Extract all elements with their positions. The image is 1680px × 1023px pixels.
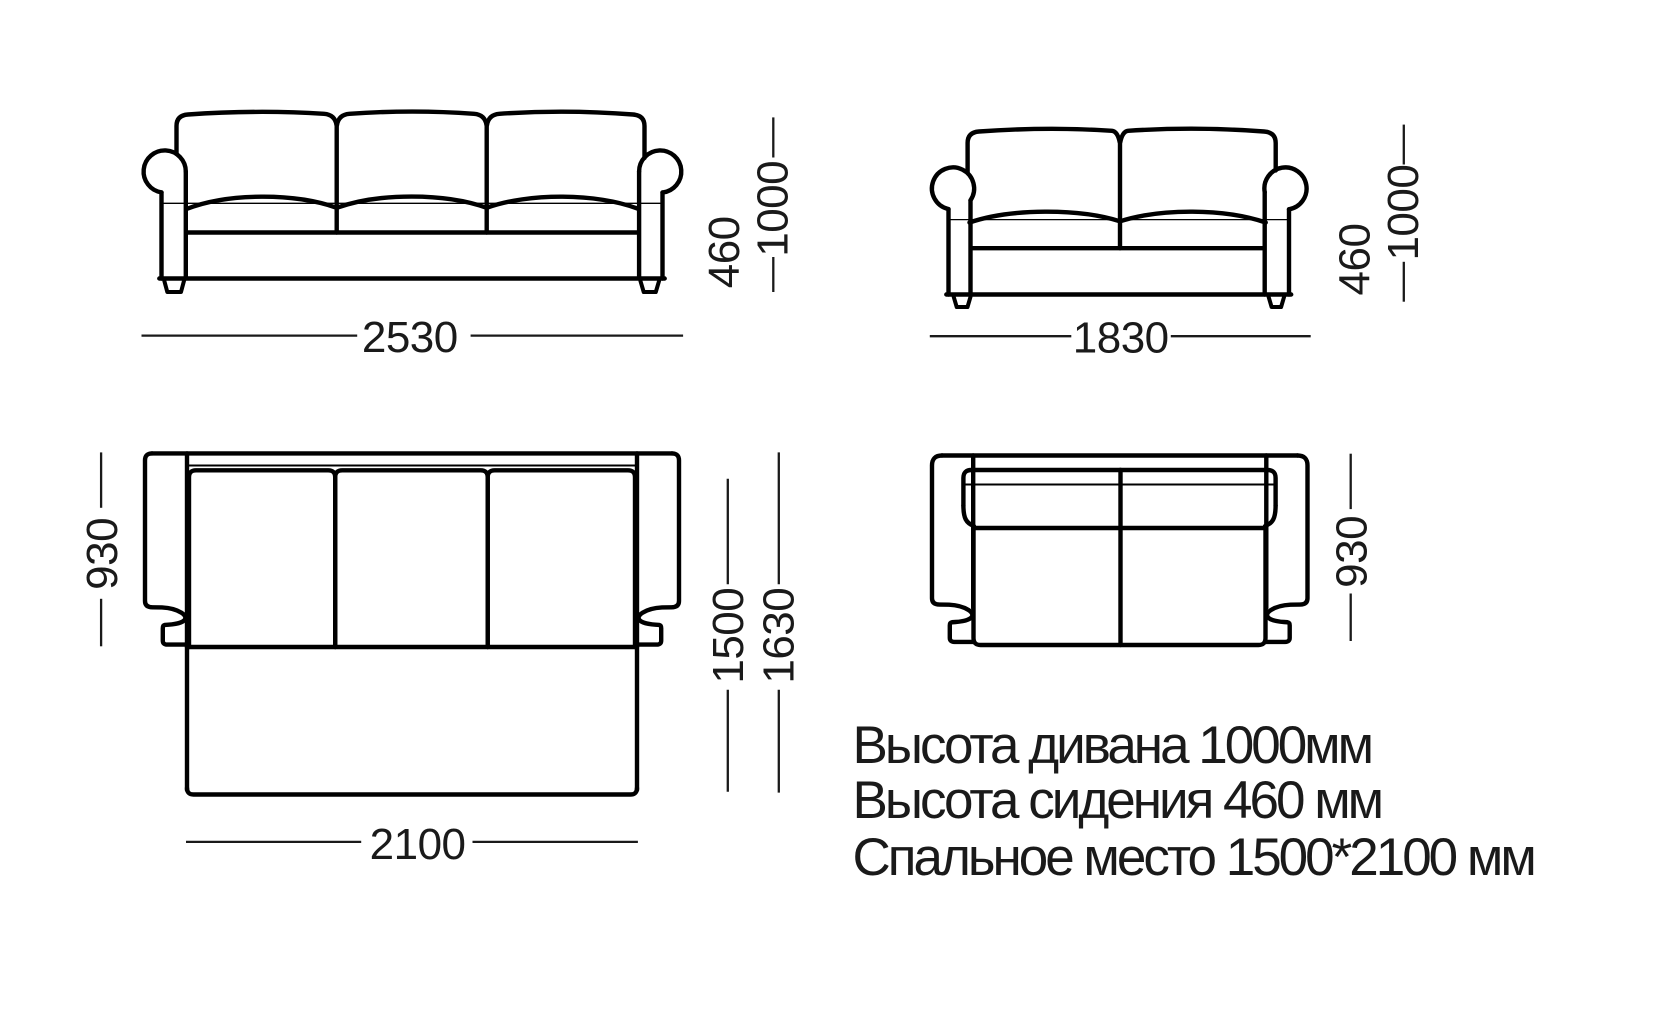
svg-text:930: 930 <box>1328 516 1377 588</box>
svg-text:1500: 1500 <box>704 588 753 684</box>
svg-text:Спальное место 1500*2100 мм: Спальное место 1500*2100 мм <box>853 828 1534 887</box>
svg-text:2100: 2100 <box>370 820 466 869</box>
svg-text:930: 930 <box>78 518 127 590</box>
svg-text:Высота сидения 460 мм: Высота сидения 460 мм <box>853 771 1382 830</box>
svg-text:1000: 1000 <box>749 161 798 257</box>
svg-text:460: 460 <box>1330 224 1379 296</box>
svg-text:Высота дивана 1000мм: Высота дивана 1000мм <box>853 716 1372 775</box>
svg-text:1630: 1630 <box>755 588 804 684</box>
svg-text:1000: 1000 <box>1379 165 1428 261</box>
svg-text:460: 460 <box>700 216 749 288</box>
svg-text:1830: 1830 <box>1073 314 1169 363</box>
svg-text:2530: 2530 <box>362 313 458 362</box>
